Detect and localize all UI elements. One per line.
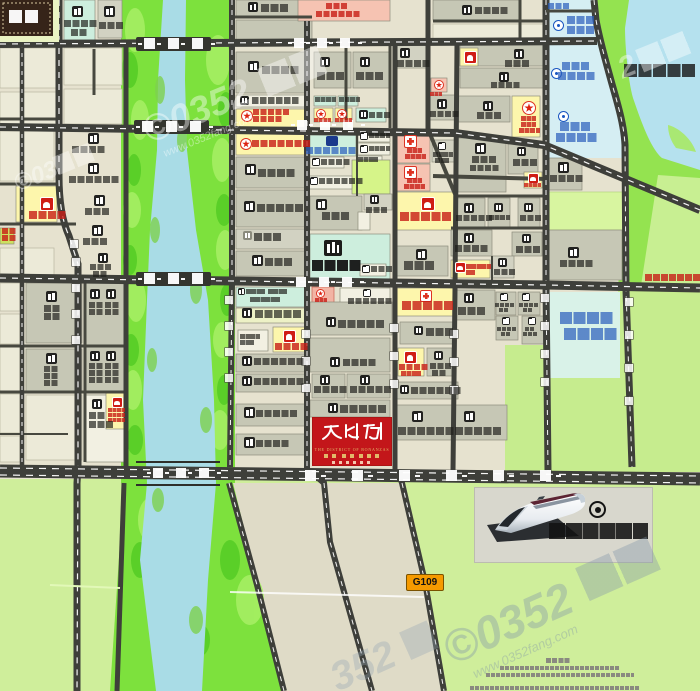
- svg-text:THE DISTRICT OF BONANZAS: THE DISTRICT OF BONANZAS: [315, 447, 390, 452]
